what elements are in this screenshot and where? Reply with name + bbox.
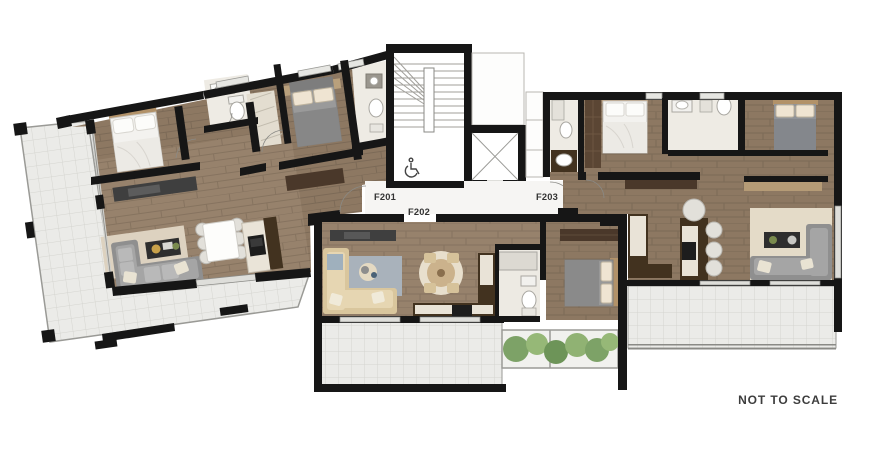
svg-text:NOT TO SCALE: NOT TO SCALE bbox=[738, 393, 838, 407]
svg-text:F203: F203 bbox=[536, 192, 558, 202]
svg-text:F202: F202 bbox=[408, 207, 430, 217]
svg-text:F201: F201 bbox=[374, 192, 396, 202]
